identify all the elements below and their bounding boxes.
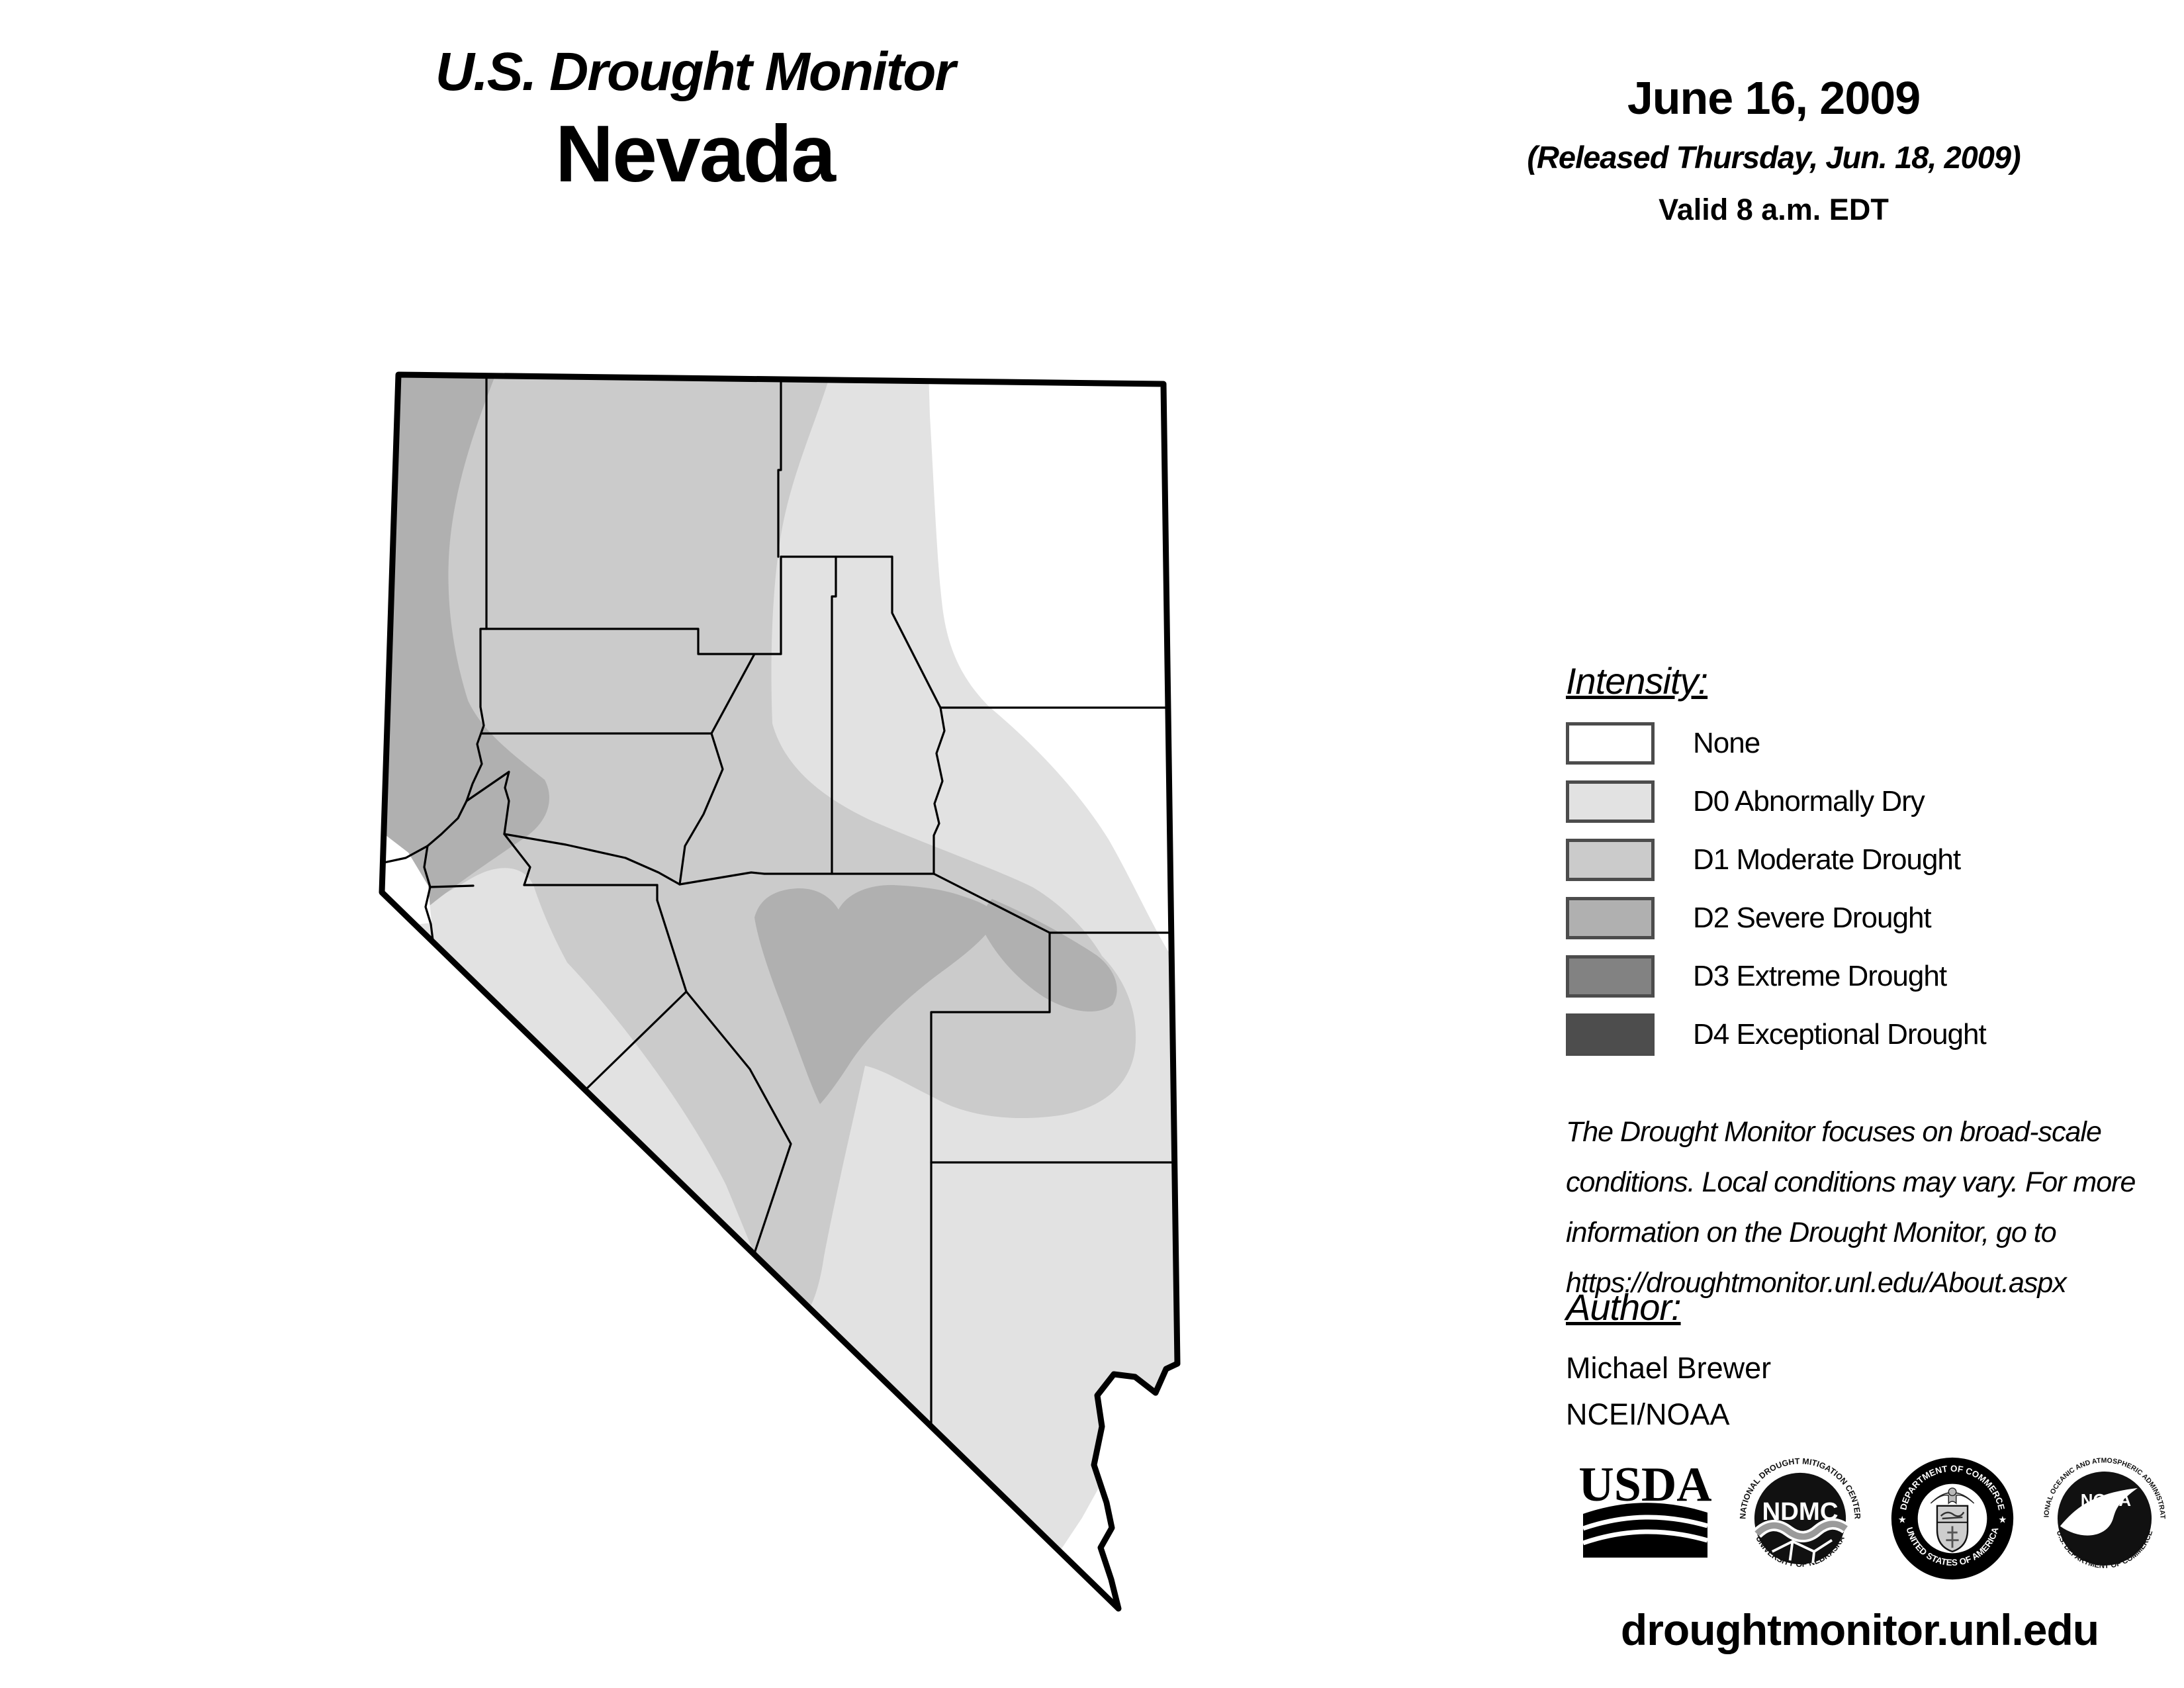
legend-swatch-d4 [1566,1013,1655,1056]
legend-label-d0: D0 Abnormally Dry [1693,785,1925,818]
legend-row-d1: D1 Moderate Drought [1566,839,1986,881]
doc-star-left: ★ [1898,1515,1907,1525]
page-title: U.S. Drought Monitor [258,41,1132,103]
agency-logos: USDA NATIONAL DROUGHT MITIGATION CENTER … [1579,1454,2168,1583]
legend-row-d4: D4 Exceptional Drought [1566,1013,1986,1056]
usda-logo-icon: USDA [1579,1457,1711,1579]
legend-label-d2: D2 Severe Drought [1693,902,1931,935]
legend-row-d2: D2 Severe Drought [1566,897,1986,939]
legend-row-none: None [1566,722,1986,765]
map-date: June 16, 2009 [1489,71,2058,124]
drought-shading-layer [367,363,1214,1614]
legend-row-d3: D3 Extreme Drought [1566,955,1986,998]
title-block: U.S. Drought Monitor Nevada [258,41,1132,200]
nevada-map-svg [367,363,1214,1614]
author-block: Author: Michael Brewer NCEI/NOAA [1566,1286,1771,1432]
commerce-seal-icon: DEPARTMENT OF COMMERCE UNITED STATES OF … [1889,1455,2016,1582]
legend-swatch-d0 [1566,780,1655,823]
released-date: (Released Thursday, Jun. 18, 2009) [1489,139,2058,175]
disclaimer-line-1: The Drought Monitor focuses on broad-sca… [1566,1107,2161,1157]
legend-swatch-none [1566,722,1655,765]
legend-swatch-d1 [1566,839,1655,881]
disclaimer-line-3: information on the Drought Monitor, go t… [1566,1207,2161,1258]
legend-heading: Intensity: [1566,659,1986,702]
footer-url: droughtmonitor.unl.edu [1509,1605,2184,1655]
author-heading: Author: [1566,1286,1771,1329]
legend-label-none: None [1693,727,1760,760]
drought-monitor-page: U.S. Drought Monitor Nevada June 16, 200… [0,0,2184,1688]
legend-rows: None D0 Abnormally Dry D1 Moderate Droug… [1566,722,1986,1056]
noaa-wordmark: NOAA [2081,1491,2132,1509]
doc-eagle-head [1948,1487,1956,1495]
region-title: Nevada [258,107,1132,200]
nevada-drought-map [367,363,1214,1614]
legend-swatch-d2 [1566,897,1655,939]
author-name: Michael Brewer [1566,1351,1771,1385]
intensity-legend: Intensity: None D0 Abnormally Dry D1 Mod… [1566,659,1986,1072]
author-org: NCEI/NOAA [1566,1397,1771,1432]
disclaimer-line-2: conditions. Local conditions may vary. F… [1566,1157,2161,1207]
ndmc-wordmark: NDMC [1762,1497,1838,1525]
legend-label-d4: D4 Exceptional Drought [1693,1018,1986,1051]
legend-label-d1: D1 Moderate Drought [1693,843,1960,876]
ndmc-logo-icon: NATIONAL DROUGHT MITIGATION CENTER UNIVE… [1737,1455,1864,1582]
date-block: June 16, 2009 (Released Thursday, Jun. 1… [1489,71,2058,227]
county-line-carson-south [430,886,473,887]
disclaimer-text: The Drought Monitor focuses on broad-sca… [1566,1107,2161,1308]
legend-swatch-d3 [1566,955,1655,998]
legend-row-d0: D0 Abnormally Dry [1566,780,1986,823]
noaa-logo-icon: NATIONAL OCEANIC AND ATMOSPHERIC ADMINIS… [2041,1455,2168,1582]
doc-star-right: ★ [1998,1515,2007,1525]
legend-label-d3: D3 Extreme Drought [1693,960,1946,993]
valid-time: Valid 8 a.m. EDT [1489,193,2058,227]
